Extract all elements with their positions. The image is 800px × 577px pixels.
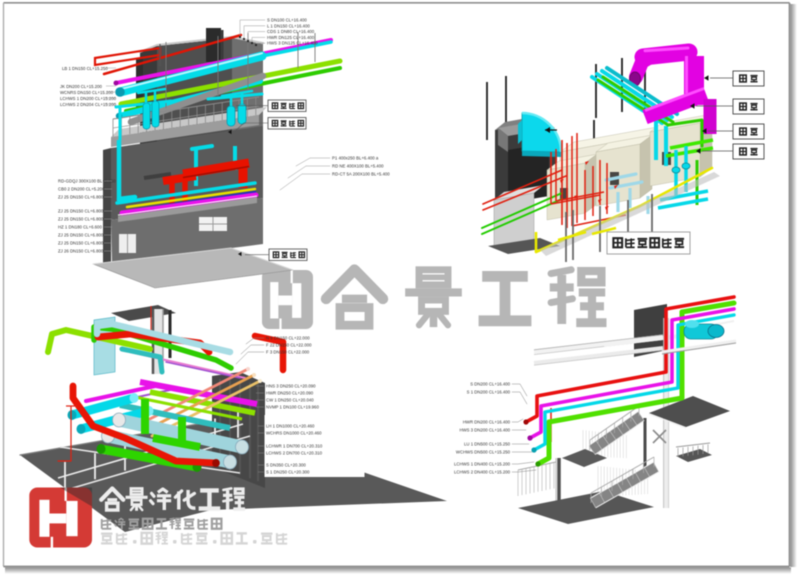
svg-text:HZ 1 DN180 CL+6.600: HZ 1 DN180 CL+6.600: [58, 225, 102, 230]
svg-text:JK DN200 CL+15.200: JK DN200 CL+15.200: [60, 84, 103, 89]
svg-text:CW 1 DN250 CL+20.040: CW 1 DN250 CL+20.040: [266, 398, 314, 403]
svg-text:LH 1 DN1000 CL+20.460: LH 1 DN1000 CL+20.460: [266, 424, 315, 429]
svg-text:ZJ 25 DN150 CL+6.800: ZJ 25 DN150 CL+6.800: [58, 217, 104, 222]
svg-text:HWR DN125 CL+16.400: HWR DN125 CL+16.400: [267, 35, 315, 40]
svg-text:S DN100 CL+16.400: S DN100 CL+16.400: [267, 18, 307, 23]
svg-text:P1 400x250 BL+6.400 a: P1 400x250 BL+6.400 a: [332, 156, 379, 161]
svg-text:F 3 DN150 CL+22.000: F 3 DN150 CL+22.000: [266, 350, 310, 355]
svg-text:LCHWS 2 DN700 CL+20.310: LCHWS 2 DN700 CL+20.310: [266, 451, 323, 456]
svg-text:NVMP 1 DN100 CL+19.960: NVMP 1 DN100 CL+19.960: [266, 405, 319, 410]
svg-text:LCHWS 2 DN204 CL+15.200: LCHWS 2 DN204 CL+15.200: [60, 102, 117, 107]
svg-text:ZJ 25 DN150 CL+6.800: ZJ 25 DN150 CL+6.800: [58, 209, 104, 214]
svg-text:WCNRS DN150 CL+15.200: WCNRS DN150 CL+15.200: [60, 90, 114, 95]
svg-text:S 1 DN200 CL+16.400: S 1 DN200 CL+16.400: [467, 390, 511, 395]
svg-text:S DN200 CL+16.400: S DN200 CL+16.400: [470, 382, 510, 387]
svg-text:LCHWR 1 DN700 CL+20.310: LCHWR 1 DN700 CL+20.310: [266, 444, 323, 449]
svg-text:LU 1 DN500 CL+15.250: LU 1 DN500 CL+15.250: [464, 442, 511, 447]
svg-text:S DN350 CL+20.300: S DN350 CL+20.300: [266, 463, 306, 468]
svg-text:ZJ 25 DN150 CL+6.800: ZJ 25 DN150 CL+6.800: [58, 195, 104, 200]
svg-text:CB0 2 DN200 CL+5.200: CB0 2 DN200 CL+5.200: [58, 187, 105, 192]
svg-text:LB 1 DN150 CL+15.250: LB 1 DN150 CL+15.250: [62, 66, 108, 71]
svg-text:ZJ 25 DN150 CL+6.800: ZJ 25 DN150 CL+6.800: [58, 241, 104, 246]
svg-text:N 9 DN150 CL+22.000: N 9 DN150 CL+22.000: [266, 336, 310, 341]
svg-text:LCHWS 1 DN400 CL+15.200: LCHWS 1 DN400 CL+15.200: [454, 462, 511, 467]
svg-text:ZJ 26 DN150 CL+6.800: ZJ 26 DN150 CL+6.800: [58, 249, 104, 254]
svg-text:HWS 3 DN125 CL+16.400: HWS 3 DN125 CL+16.400: [267, 41, 318, 46]
svg-text:L 1 DN150 CL+16.400: L 1 DN150 CL+16.400: [267, 23, 310, 28]
svg-text:LCHWS 2 DN400 CL+15.200: LCHWS 2 DN400 CL+15.200: [454, 470, 511, 475]
svg-text:S 1 DN250 CL+20.300: S 1 DN250 CL+20.300: [266, 470, 310, 475]
svg-text:WCHWS DN500 CL+15.250: WCHWS DN500 CL+15.250: [456, 450, 511, 455]
svg-text:RD NE 400X100 BL+5.400: RD NE 400X100 BL+5.400: [332, 164, 384, 169]
svg-text:HWR DN250 CL+20.090: HWR DN250 CL+20.090: [266, 391, 314, 396]
svg-text:HNS 3 DN250 CL+20.090: HNS 3 DN250 CL+20.090: [266, 384, 316, 389]
svg-text:F 22 DN150 CL+22.000: F 22 DN150 CL+22.000: [266, 343, 312, 348]
svg-text:WCHRS DN1000 CL+20.460: WCHRS DN1000 CL+20.460: [266, 431, 322, 436]
svg-text:HWS 3 DN200 CL+16.400: HWS 3 DN200 CL+16.400: [459, 428, 510, 433]
svg-text:HWR DN200 CL+16.400: HWR DN200 CL+16.400: [463, 420, 511, 425]
svg-text:RD-CT 5A 200X100 BL+5.400: RD-CT 5A 200X100 BL+5.400: [332, 172, 390, 177]
svg-text:LCHWS 1 DN200 CL+15.200: LCHWS 1 DN200 CL+15.200: [60, 96, 117, 101]
svg-text:CDS 1 DN80 CL+16.400: CDS 1 DN80 CL+16.400: [267, 29, 315, 34]
svg-text:ZJ 25 DN150 CL+6.800: ZJ 25 DN150 CL+6.800: [58, 233, 104, 238]
